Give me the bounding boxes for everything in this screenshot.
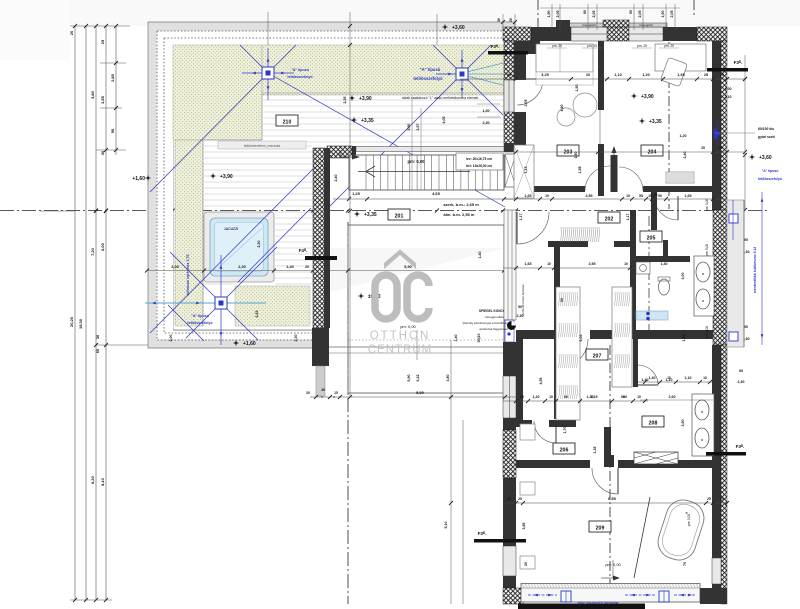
svg-text:1,65: 1,65 xyxy=(677,73,684,77)
svg-text:pm: 25: pm: 25 xyxy=(664,44,674,48)
svg-text:lerl: 19x28,00 cm: lerl: 19x28,00 cm xyxy=(466,164,492,168)
svg-text:10: 10 xyxy=(545,194,549,198)
svg-text:30|10: 30|10 xyxy=(477,333,481,342)
svg-text:felületvédelem_mezsola: felületvédelem_mezsola xyxy=(244,144,280,148)
svg-text:25: 25 xyxy=(704,73,708,77)
svg-text:1,40: 1,40 xyxy=(642,378,649,382)
svg-text:203: 203 xyxy=(564,150,573,156)
svg-text:+3,35: +3,35 xyxy=(364,212,377,218)
svg-text:90: 90 xyxy=(629,10,633,14)
svg-text:60: 60 xyxy=(564,395,568,399)
svg-text:4,90: 4,90 xyxy=(560,105,564,112)
svg-text:szerk. b.m.: 2,65 m: szerk. b.m.: 2,65 m xyxy=(443,202,479,207)
svg-text:+3,90: +3,90 xyxy=(220,174,233,180)
svg-text:2,30: 2,30 xyxy=(257,241,261,248)
svg-text:25: 25 xyxy=(507,73,511,77)
svg-text:3,00: 3,00 xyxy=(681,273,685,280)
svg-text:"A" típusú: "A" típusú xyxy=(191,314,209,318)
svg-text:pm: 25: pm: 25 xyxy=(587,44,597,48)
svg-text:1,10: 1,10 xyxy=(666,378,673,382)
svg-text:20: 20 xyxy=(305,265,309,269)
svg-text:álm. b.m. 2,55 m: álm. b.m. 2,55 m xyxy=(444,212,475,217)
svg-text:3,55: 3,55 xyxy=(100,95,105,104)
svg-text:1,17: 1,17 xyxy=(519,214,523,221)
svg-text:1,20: 1,20 xyxy=(642,73,649,77)
svg-text:+3,35: +3,35 xyxy=(361,118,374,124)
svg-text:pm: 25: pm: 25 xyxy=(637,44,647,48)
svg-text:20: 20 xyxy=(524,562,528,566)
svg-text:pm: 0,00: pm: 0,00 xyxy=(705,326,709,339)
svg-text:"A" típusú: "A" típusú xyxy=(420,67,441,72)
svg-text:tetőösszefolyó: tetőösszefolyó xyxy=(758,177,782,181)
svg-text:15: 15 xyxy=(334,391,338,395)
svg-text:2,00: 2,00 xyxy=(171,265,178,269)
svg-text:1,13: 1,13 xyxy=(524,167,528,174)
svg-text:60: 60 xyxy=(623,395,627,399)
svg-text:60/100 kis: 60/100 kis xyxy=(758,127,774,131)
svg-text:"A" típusú: "A" típusú xyxy=(291,68,309,72)
svg-text:20: 20 xyxy=(507,497,511,501)
svg-text:pm: 0,00: pm: 0,00 xyxy=(687,514,691,527)
svg-text:7,20: 7,20 xyxy=(90,247,95,256)
svg-text:209: 209 xyxy=(596,526,605,532)
svg-text:2,30: 2,30 xyxy=(738,380,745,384)
svg-text:1,50: 1,50 xyxy=(661,11,665,18)
svg-text:3,80: 3,80 xyxy=(446,375,450,382)
svg-text:tetőösszefolyó: tetőösszefolyó xyxy=(287,75,313,79)
svg-text:4,55: 4,55 xyxy=(539,378,543,385)
svg-text:1,65: 1,65 xyxy=(525,194,532,198)
svg-text:19,30: 19,30 xyxy=(78,318,83,329)
svg-text:"A" típusú: "A" típusú xyxy=(762,169,779,173)
svg-text:pm: 0,00: pm: 0,00 xyxy=(605,562,621,567)
svg-text:20,20: 20,20 xyxy=(69,316,74,327)
svg-text:2,10: 2,10 xyxy=(725,95,732,99)
svg-text:20: 20 xyxy=(719,146,723,150)
svg-text:2,30: 2,30 xyxy=(294,335,298,342)
svg-text:+3,60: +3,60 xyxy=(452,25,465,31)
svg-text:10: 10 xyxy=(637,395,641,399)
svg-text:építészek függvénye): építészek függvénye) xyxy=(479,327,508,331)
svg-text:1,50: 1,50 xyxy=(575,85,579,92)
svg-text:90: 90 xyxy=(744,238,748,242)
svg-text:1,65: 1,65 xyxy=(685,194,692,198)
svg-text:1,35: 1,35 xyxy=(587,395,594,399)
svg-text:OTTHON: OTTHON xyxy=(370,330,431,342)
svg-text:1,40: 1,40 xyxy=(649,376,656,380)
svg-text:JACUZZI: JACUZZI xyxy=(224,227,238,231)
svg-text:1,20: 1,20 xyxy=(651,193,658,197)
svg-text:25: 25 xyxy=(518,497,522,501)
svg-text:1,00: 1,00 xyxy=(483,109,490,113)
svg-text:4,05: 4,05 xyxy=(442,117,446,124)
svg-text:25: 25 xyxy=(701,146,705,150)
svg-text:208: 208 xyxy=(649,421,658,427)
svg-text:1,58: 1,58 xyxy=(578,167,582,174)
svg-text:90: 90 xyxy=(739,369,743,373)
svg-text:1,65: 1,65 xyxy=(525,262,532,266)
svg-text:pm: 0,00: pm: 0,00 xyxy=(400,324,416,329)
svg-text:pm: 25: pm: 25 xyxy=(552,44,562,48)
svg-text:45: 45 xyxy=(321,388,325,392)
svg-text:perforált tömör burkolat: perforált tömör burkolat xyxy=(521,284,525,315)
svg-text:csepegtető: csepegtető xyxy=(582,23,596,27)
svg-text:2,57: 2,57 xyxy=(416,124,420,131)
svg-text:10: 10 xyxy=(586,73,590,77)
svg-text:3,50: 3,50 xyxy=(681,420,685,427)
svg-text:lev: 20x16,75 cm: lev: 20x16,75 cm xyxy=(466,157,492,161)
svg-text:210: 210 xyxy=(283,120,292,126)
svg-text:4,65: 4,65 xyxy=(432,191,441,196)
svg-text:előírások lejtésihez 3,75: előírások lejtésihez 3,75 xyxy=(186,255,190,296)
svg-text:2,23: 2,23 xyxy=(255,311,259,318)
svg-text:60: 60 xyxy=(96,349,100,353)
svg-text:205: 205 xyxy=(647,236,656,242)
svg-text:90: 90 xyxy=(658,194,662,198)
svg-text:5,90: 5,90 xyxy=(407,124,411,131)
svg-text:1,10: 1,10 xyxy=(614,73,621,77)
svg-text:10: 10 xyxy=(703,376,707,380)
svg-text:25: 25 xyxy=(707,497,711,501)
svg-text:25: 25 xyxy=(100,39,105,44)
svg-text:20: 20 xyxy=(69,30,74,35)
svg-text:1,50: 1,50 xyxy=(547,11,551,18)
svg-text:tetőösszefolyó: tetőösszefolyó xyxy=(187,321,213,325)
svg-text:6,55: 6,55 xyxy=(608,496,617,501)
svg-text:5,90: 5,90 xyxy=(416,390,425,395)
svg-text:20: 20 xyxy=(306,391,310,395)
svg-text:20: 20 xyxy=(720,497,724,501)
svg-text:+3,35: +3,35 xyxy=(649,119,662,125)
svg-text:2,55: 2,55 xyxy=(589,262,596,266)
svg-text:+3,90: +3,90 xyxy=(359,96,372,102)
svg-text:F3ᴮ.: F3ᴮ. xyxy=(736,444,745,449)
svg-text:1,50: 1,50 xyxy=(574,152,578,159)
svg-text:csepegtető: csepegtető xyxy=(639,23,653,27)
svg-text:2,05: 2,05 xyxy=(556,11,560,18)
svg-text:1,10: 1,10 xyxy=(685,376,692,380)
svg-text:8,30: 8,30 xyxy=(90,475,95,484)
svg-text:20: 20 xyxy=(509,18,513,22)
svg-text:1,00: 1,00 xyxy=(725,87,732,91)
svg-text:5,90: 5,90 xyxy=(407,375,411,382)
svg-text:30: 30 xyxy=(100,150,105,155)
svg-text:1,20: 1,20 xyxy=(680,134,687,138)
svg-text:95: 95 xyxy=(110,128,115,133)
svg-text:201: 201 xyxy=(395,214,404,220)
svg-text:+3,90: +3,90 xyxy=(641,94,654,100)
svg-text:2,30: 2,30 xyxy=(238,265,245,269)
svg-text:206: 206 xyxy=(560,448,569,454)
svg-text:1,17: 1,17 xyxy=(626,214,630,221)
svg-text:5,10: 5,10 xyxy=(444,522,448,529)
svg-text:pm: 0,00: pm: 0,00 xyxy=(408,159,426,164)
svg-text:5,90: 5,90 xyxy=(404,265,411,269)
svg-text:3,05: 3,05 xyxy=(524,100,528,107)
svg-text:1,20: 1,20 xyxy=(533,395,540,399)
svg-text:2,40: 2,40 xyxy=(334,175,338,182)
svg-text:2,60: 2,60 xyxy=(669,395,676,399)
svg-text:2,35: 2,35 xyxy=(343,97,347,104)
svg-text:oldalt csatlakozó "L" alakú: oldalt csatlakozó "L" alakú mellvédkoron… xyxy=(402,96,479,100)
svg-text:(bármily körülmények a feszült: (bármily körülmények a feszültség xyxy=(463,321,509,325)
svg-text:CENTRUM: CENTRUM xyxy=(368,344,433,356)
svg-text:2,05: 2,05 xyxy=(670,11,674,18)
svg-text:1,40: 1,40 xyxy=(661,262,668,266)
svg-text:30: 30 xyxy=(497,18,501,22)
svg-text:10: 10 xyxy=(547,262,551,266)
svg-text:2,30: 2,30 xyxy=(483,121,490,125)
svg-text:F3ᴮ.: F3ᴮ. xyxy=(734,60,743,65)
svg-text:8,10: 8,10 xyxy=(100,477,105,486)
svg-text:204: 204 xyxy=(648,150,657,156)
svg-text:6,05: 6,05 xyxy=(579,335,583,342)
svg-text:207: 207 xyxy=(593,354,602,360)
svg-text:3,80: 3,80 xyxy=(90,90,95,99)
svg-text:55: 55 xyxy=(639,194,643,198)
svg-text:F3ᴮ.: F3ᴮ. xyxy=(478,531,487,536)
svg-text:+3,60: +3,60 xyxy=(759,155,772,161)
svg-text:F4ᴮ.: F4ᴮ. xyxy=(299,248,308,253)
svg-text:90: 90 xyxy=(744,325,748,329)
svg-text:70: 70 xyxy=(683,562,687,566)
svg-text:2,40: 2,40 xyxy=(683,152,687,159)
svg-text:20: 20 xyxy=(720,73,724,77)
svg-text:90: 90 xyxy=(583,10,587,14)
svg-text:pm: 0,00: pm: 0,00 xyxy=(705,199,709,212)
svg-text:25: 25 xyxy=(520,395,524,399)
svg-text:30: 30 xyxy=(96,335,100,339)
svg-text:1,35: 1,35 xyxy=(593,447,597,454)
svg-text:1,25: 1,25 xyxy=(352,191,361,196)
svg-text:2,05: 2,05 xyxy=(592,11,596,18)
svg-text:10: 10 xyxy=(624,262,628,266)
svg-text:+1,60: +1,60 xyxy=(243,341,256,347)
svg-text:10: 10 xyxy=(549,395,553,399)
svg-text:1,40: 1,40 xyxy=(478,252,482,259)
svg-text:1,35: 1,35 xyxy=(682,335,686,342)
svg-text:tetőösszefolyó: tetőösszefolyó xyxy=(413,76,443,81)
svg-text:2,05: 2,05 xyxy=(638,11,642,18)
svg-text:10: 10 xyxy=(626,194,630,198)
svg-text:2,85: 2,85 xyxy=(110,73,115,82)
svg-text:1,40: 1,40 xyxy=(286,265,293,269)
svg-text:2,00: 2,00 xyxy=(169,335,173,342)
svg-text:202: 202 xyxy=(605,217,614,223)
svg-text:2,55: 2,55 xyxy=(586,194,593,198)
svg-text:6,00: 6,00 xyxy=(100,242,105,251)
svg-text:3,25: 3,25 xyxy=(541,73,548,77)
svg-text:F3ᴮ.: F3ᴮ. xyxy=(491,44,500,49)
svg-text:pm: 0,00: pm: 0,00 xyxy=(705,244,709,257)
svg-text:gyári szett: gyári szett xyxy=(758,135,776,139)
svg-text:+1,60: +1,60 xyxy=(132,176,145,182)
svg-text:60: 60 xyxy=(560,298,564,302)
svg-text:3,85: 3,85 xyxy=(522,523,526,530)
svg-text:1,70: 1,70 xyxy=(563,427,567,434)
svg-text:6,22: 6,22 xyxy=(416,375,420,382)
svg-text:1,40: 1,40 xyxy=(454,335,458,342)
svg-text:mentesítőbb kútőrésznc 5,12: mentesítőbb kútőrésznc 5,12 xyxy=(753,247,757,294)
